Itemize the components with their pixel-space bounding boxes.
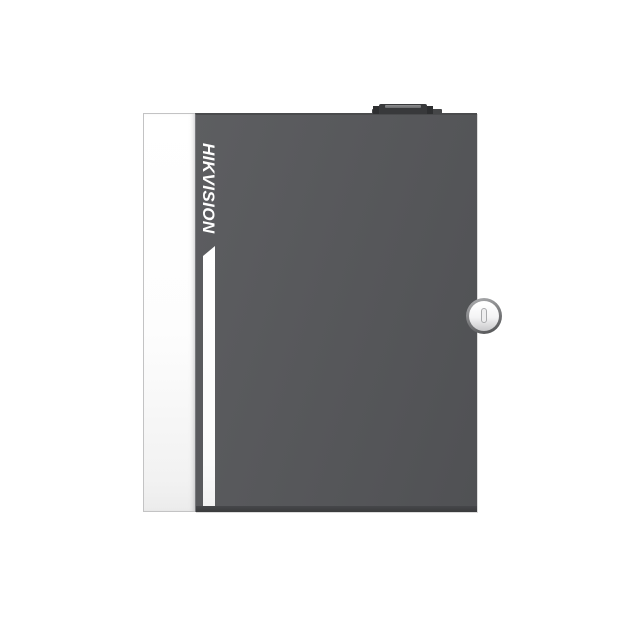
controller-enclosure: HIKVISION — [143, 113, 477, 512]
accent-bar — [203, 246, 215, 511]
top-knob-highlight — [385, 105, 421, 108]
top-knob-right-tab — [426, 106, 433, 114]
cam-lock — [466, 298, 502, 334]
door-bottom-edge — [196, 506, 477, 512]
keyhole-slot-icon — [481, 308, 487, 323]
hinge-stripe — [143, 113, 195, 512]
product-photo: HIKVISION — [0, 0, 620, 620]
top-knob — [379, 104, 427, 114]
brand-logo-text: HIKVISION — [198, 143, 218, 234]
lock-face — [469, 301, 499, 331]
door-panel: HIKVISION — [195, 113, 477, 512]
